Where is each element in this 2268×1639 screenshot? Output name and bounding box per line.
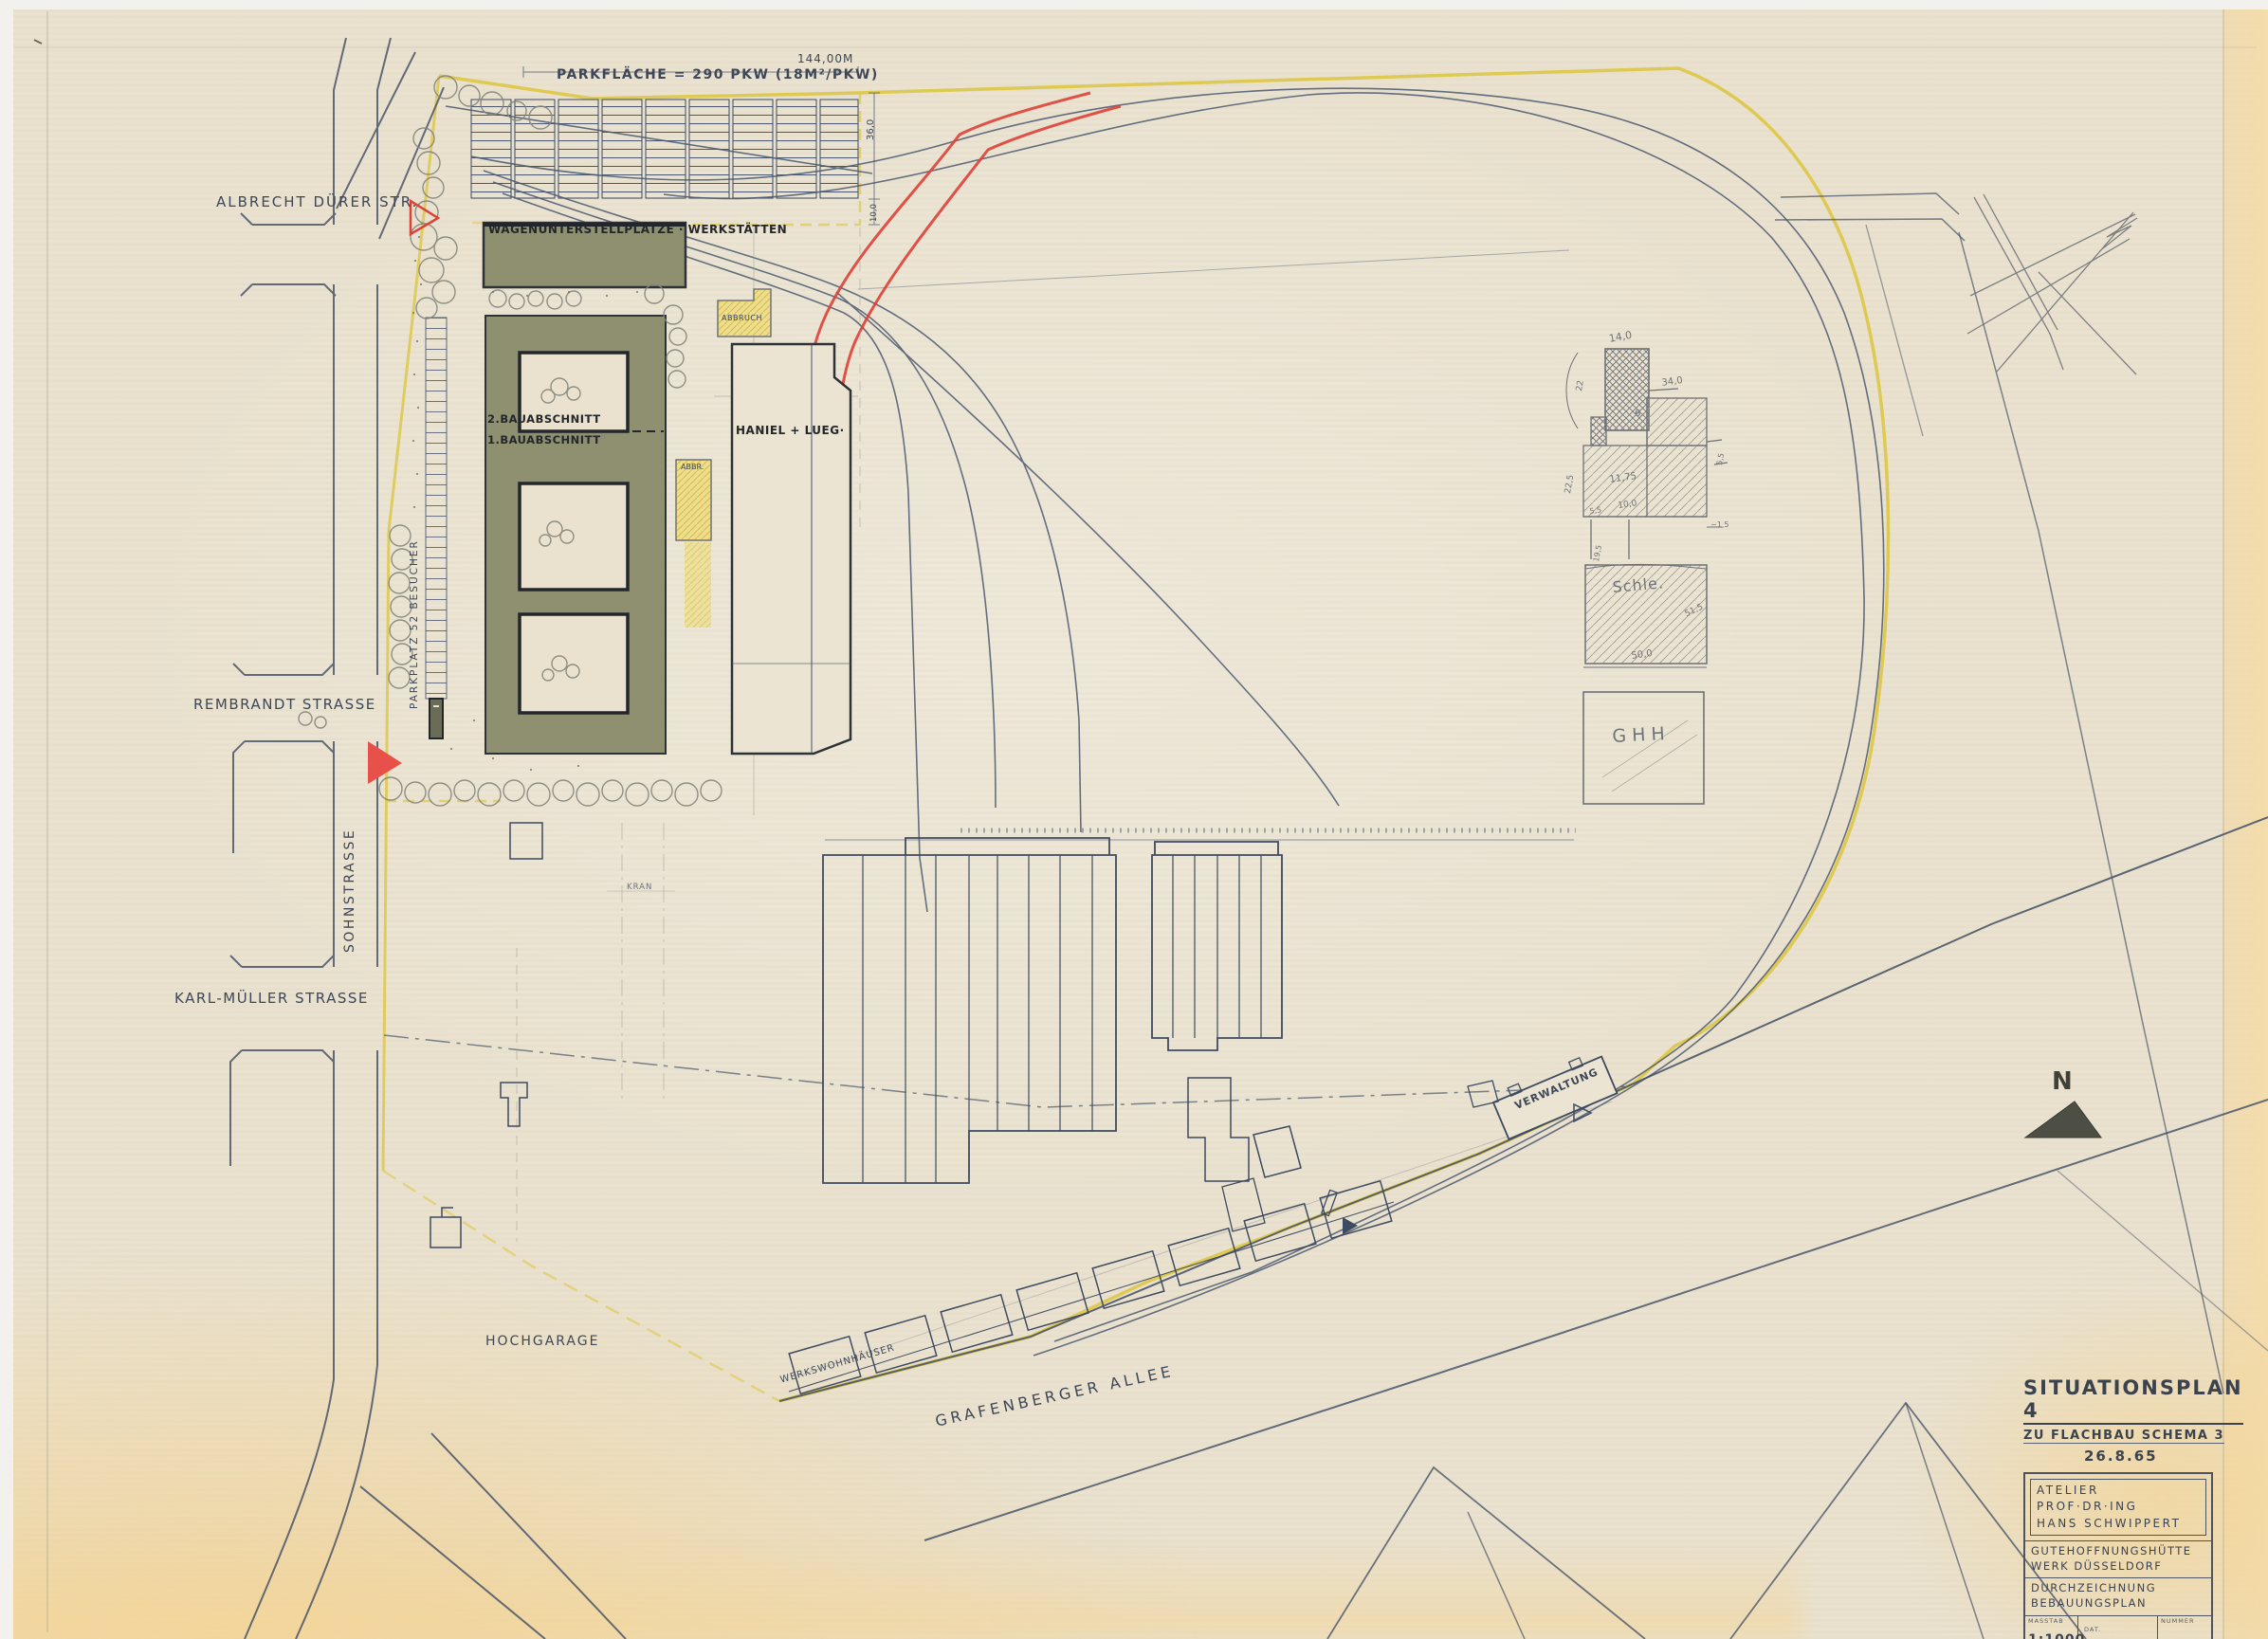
building-label-haniel: HANIEL + LUEG·	[736, 425, 845, 437]
north-label: N	[2052, 1069, 2073, 1095]
visitor-parking-strip	[426, 318, 447, 699]
building-haniel-lueg	[732, 344, 850, 754]
werkswohnhaeuser-row	[789, 1181, 1394, 1393]
number-field: NUMMER	[2158, 1616, 2207, 1639]
building-label-wagenhalle: WAGENUNTERSTELLPLÄTZE · WERKSTÄTTEN	[488, 224, 787, 236]
title-block-fields: MASSTAB 1:1000 DAT. 10.8.65 BEZ. KLOSE G…	[2025, 1615, 2211, 1639]
scale-label: MASSTAB	[2028, 1617, 2075, 1625]
plan-title: SITUATIONSPLAN 4	[2023, 1376, 2243, 1425]
pencil-scribble-x	[1967, 194, 2137, 374]
plan-subtitle: ZU FLACHBAU SCHEMA 3	[2023, 1429, 2224, 1444]
street-label-karl-mueller: KARL-MÜLLER STRASSE	[174, 992, 369, 1007]
abbruch-label: ABBRUCH	[722, 315, 762, 322]
verwaltung-cluster	[1188, 1049, 1618, 1231]
title-block-frame: ATELIER PROF·DR·ING HANS SCHWIPPERT GUTE…	[2023, 1472, 2213, 1639]
sketch-label-ghh: GHH	[1612, 725, 1671, 747]
atelier-line2: HANS SCHWIPPERT	[2037, 1517, 2181, 1530]
project-line2: WERK DÜSSELDORF	[2031, 1559, 2162, 1573]
street-network-bottom-right	[384, 193, 2268, 1639]
margin-rules	[14, 9, 2257, 1639]
project-line1: GUTEHOFFNUNGSHÜTTE	[2031, 1544, 2192, 1557]
dim-10: 10,0	[870, 204, 879, 222]
small-buildings	[430, 823, 542, 1247]
street-label-sohnstrasse: SOHNSTRASSE	[343, 829, 357, 953]
building-label-bau1: 1.BAUABSCHNITT	[487, 434, 601, 446]
plan-date-note: 26.8.65	[2084, 1448, 2238, 1465]
plan-linework	[0, 0, 2268, 1639]
sketch-dim-6: 6	[1635, 410, 1640, 420]
north-arrow-icon	[2025, 1102, 2101, 1138]
sketch-dim-22: 22	[1576, 380, 1586, 392]
visitor-parking-label: PARKPLATZ 52 BESUCHER	[410, 539, 420, 709]
number-label: NUMMER	[2161, 1617, 2204, 1625]
site-plan-sheet: PARKFLÄCHE = 290 PKW (18M²/PKW) 144,00M …	[0, 0, 2268, 1639]
dim-36: 36,0	[867, 119, 877, 140]
atelier-line1: ATELIER PROF·DR·ING	[2037, 1484, 2137, 1513]
factory-halls	[823, 838, 1282, 1183]
scale-field: MASSTAB 1:1000	[2025, 1616, 2078, 1639]
sketch-dim-5-5: 5,5	[1589, 506, 1602, 516]
building-label-bau2: 2.BAUABSCHNITT	[487, 413, 601, 425]
drawing-type: DURCHZEICHNUNG BEBAUUNGSPLAN	[2025, 1577, 2211, 1614]
abbr-label: ABBR.	[681, 464, 704, 471]
title-block: SITUATIONSPLAN 4 ZU FLACHBAU SCHEMA 3 26…	[2023, 1376, 2238, 1639]
scale-value: 1:1000	[2028, 1632, 2075, 1639]
hochgarage-label: HOCHGARAGE	[485, 1335, 599, 1349]
drawing-line1: DURCHZEICHNUNG	[2031, 1581, 2156, 1594]
date-label: DAT.	[2084, 1626, 2101, 1633]
buildings-olive	[430, 223, 686, 754]
dim-144m: 144,00M	[797, 53, 853, 65]
sketch-dim-minus-1-5: −1,5	[1710, 521, 1728, 529]
atelier-name: ATELIER PROF·DR·ING HANS SCHWIPPERT	[2030, 1479, 2206, 1536]
street-label-albrecht-duerer: ALBRECHT DÜRER STR.	[216, 195, 418, 210]
drawing-line2: BEBAUUNGSPLAN	[2031, 1596, 2147, 1610]
parking-area-note: PARKFLÄCHE = 290 PKW (18M²/PKW)	[557, 68, 879, 82]
project-name: GUTEHOFFNUNGSHÜTTE WERK DÜSSELDORF	[2025, 1540, 2211, 1577]
meta-fields: DAT. 10.8.65 BEZ. KLOSE GRO A1	[2078, 1616, 2158, 1639]
kran-label: KRAN	[627, 883, 652, 892]
street-label-rembrandt: REMBRANDT STRASSE	[193, 698, 376, 713]
